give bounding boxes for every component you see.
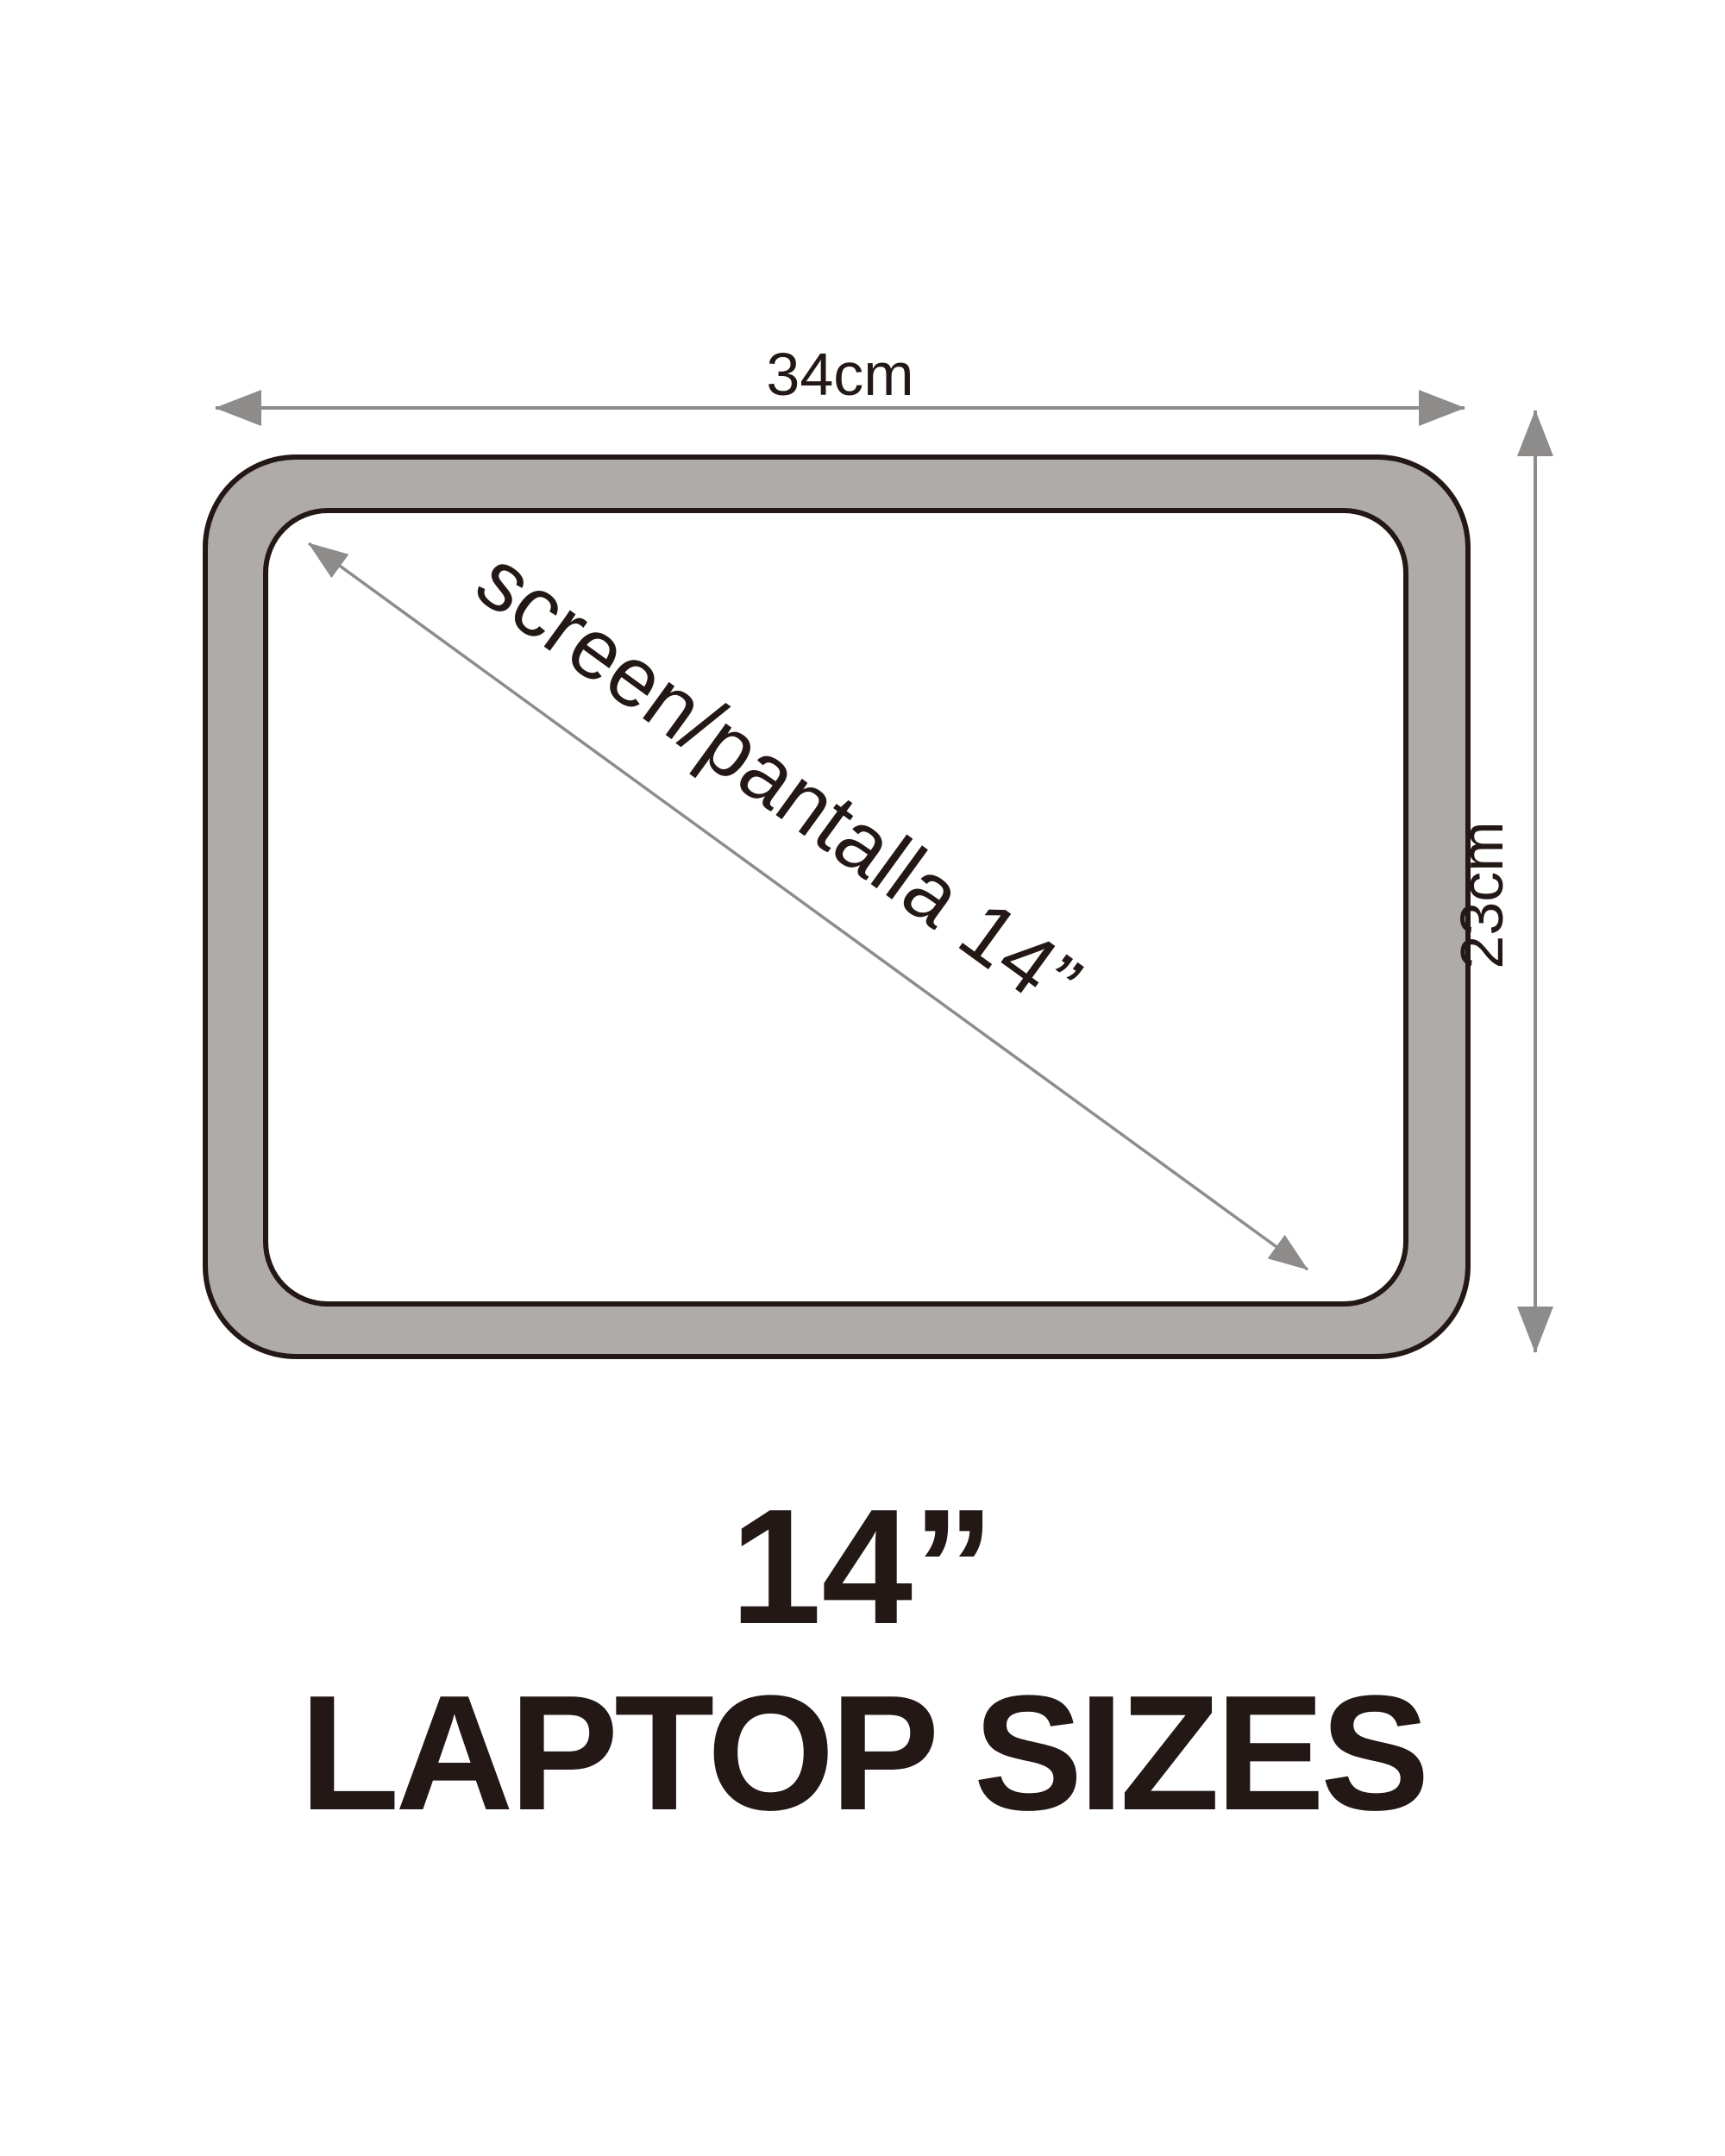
width-dimension-label: 34cm: [766, 341, 913, 408]
laptop-sizes-caption: LAPTOP SIZES: [299, 1662, 1426, 1845]
laptop-size-diagram-page: 34cm 23cm screen/pantalla 14” 14” LAPTOP…: [0, 0, 1725, 2156]
height-dimension-label: 23cm: [1448, 821, 1515, 968]
laptop-size-diagram: 34cm 23cm screen/pantalla 14” 14” LAPTOP…: [0, 0, 1725, 2156]
laptop-size-title: 14”: [731, 1476, 994, 1658]
laptop-screen: [266, 511, 1406, 1304]
